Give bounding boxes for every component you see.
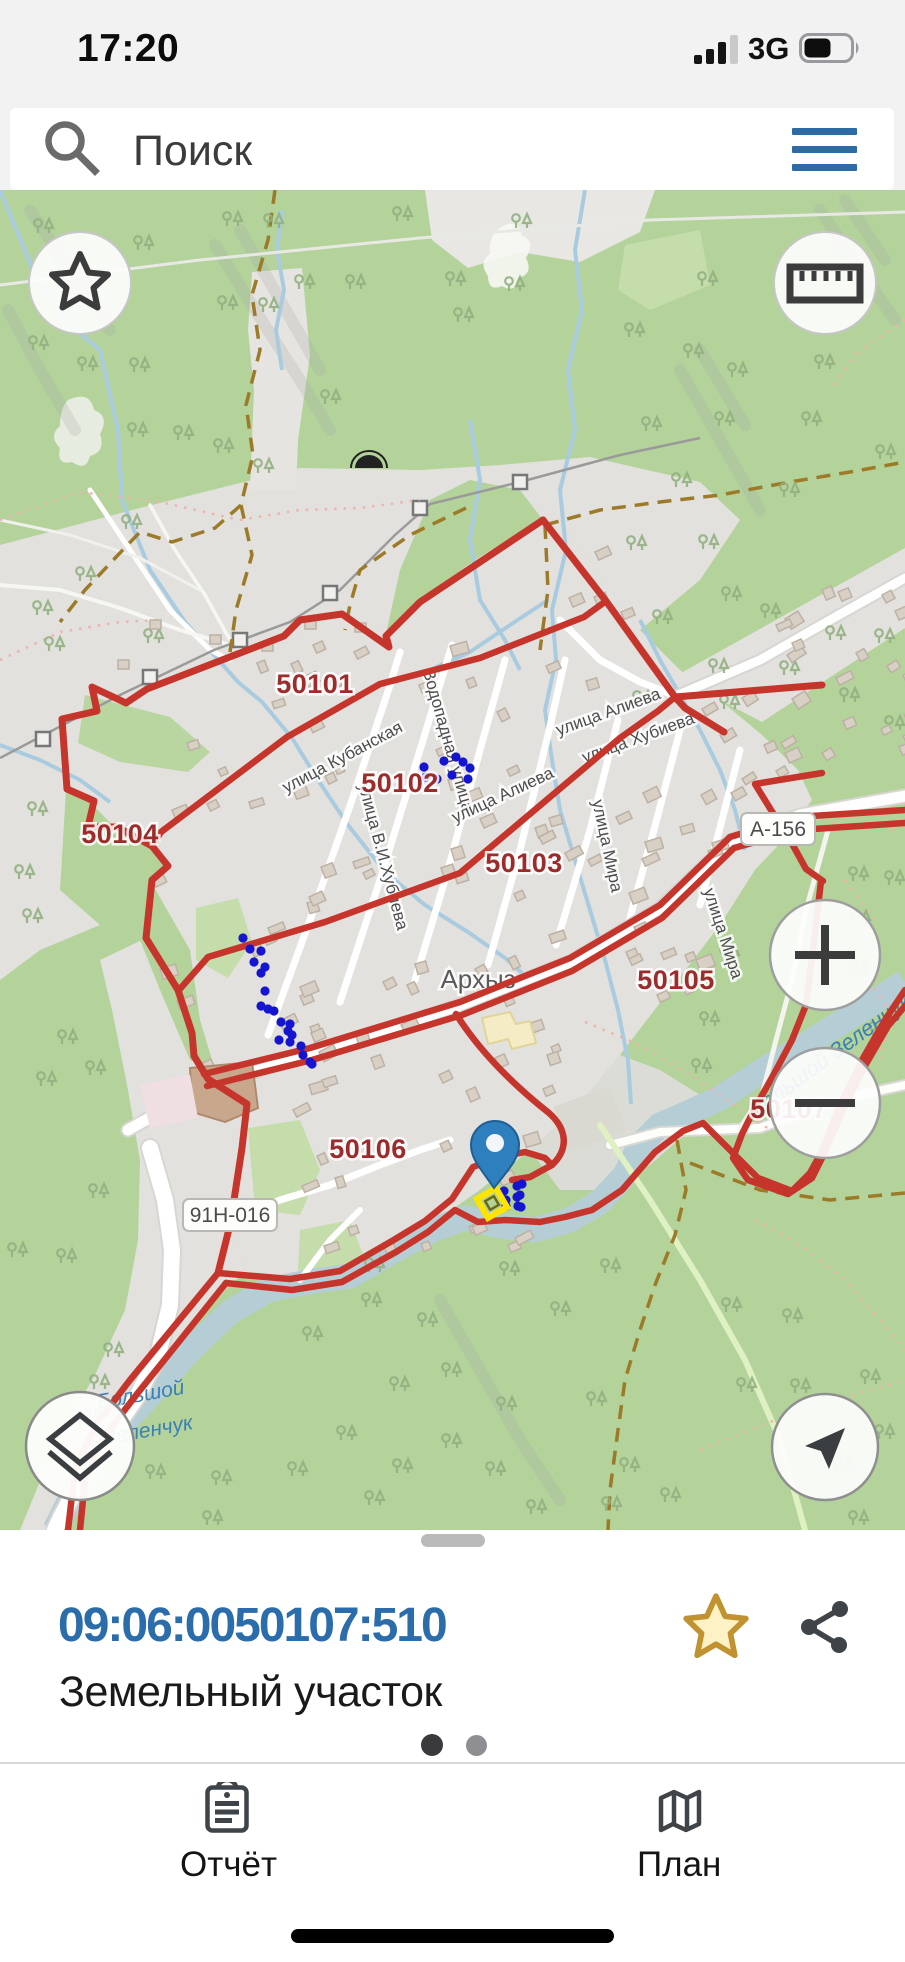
svg-text:91Н-016: 91Н-016 [190,1204,271,1227]
svg-text:50103: 50103 [485,848,563,878]
svg-text:Архыз: Архыз [440,964,515,994]
svg-text:А-156: А-156 [750,818,806,841]
svg-text:50102: 50102 [361,768,439,798]
svg-text:50106: 50106 [329,1134,407,1164]
svg-text:50101: 50101 [276,669,354,699]
svg-text:50104: 50104 [81,819,159,849]
svg-text:50105: 50105 [637,965,715,995]
